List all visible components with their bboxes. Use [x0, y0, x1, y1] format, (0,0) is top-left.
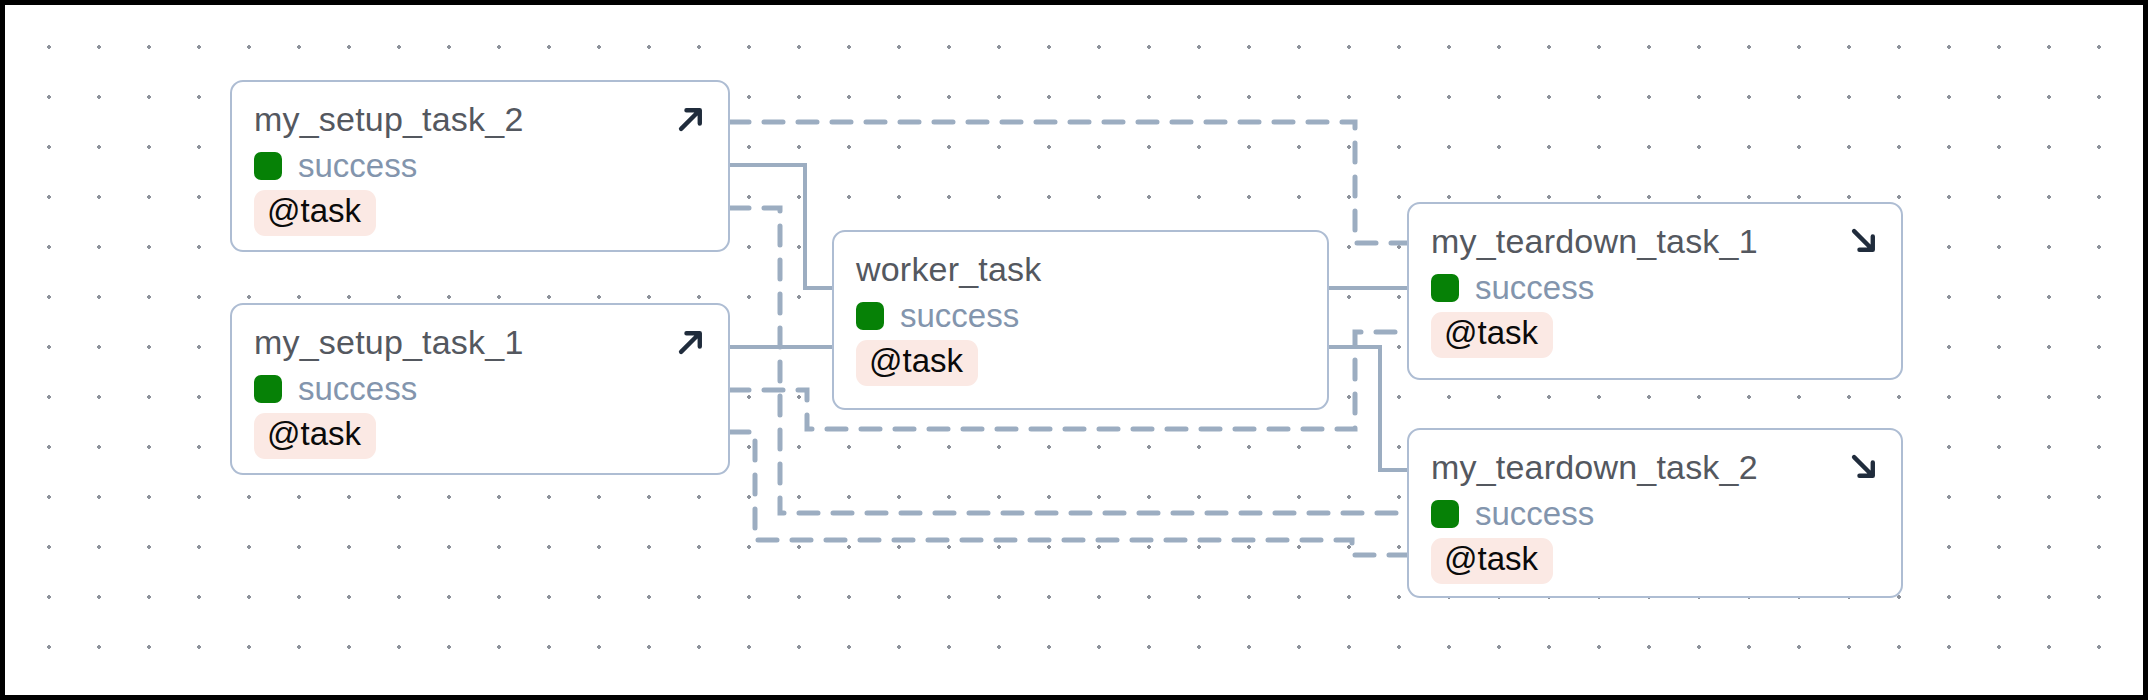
task-status-row: success	[254, 145, 710, 187]
task-badge-row: @task	[1431, 538, 1883, 584]
task-decorator-badge: @task	[1431, 538, 1553, 584]
status-square-icon	[1431, 274, 1459, 302]
task-node-my_setup_task_2[interactable]: my_setup_task_2 success @task	[230, 80, 730, 252]
status-square-icon	[856, 302, 884, 330]
task-badge-row: @task	[1431, 312, 1883, 358]
teardown-arrow-icon	[1847, 450, 1881, 484]
task-node-header: my_teardown_task_1	[1431, 218, 1883, 264]
task-node-header: my_setup_task_1	[254, 319, 710, 365]
graph-canvas[interactable]: my_setup_task_2 success @task my_setup_t…	[0, 0, 2148, 700]
status-label: success	[1475, 269, 1594, 307]
task-status-row: success	[856, 295, 1309, 337]
task-badge-row: @task	[856, 340, 1309, 386]
task-node-my_setup_task_1[interactable]: my_setup_task_1 success @task	[230, 303, 730, 475]
task-status-row: success	[1431, 493, 1883, 535]
status-square-icon	[254, 152, 282, 180]
task-title: my_setup_task_1	[254, 323, 524, 362]
status-label: success	[1475, 495, 1594, 533]
nodes-layer: my_setup_task_2 success @task my_setup_t…	[0, 0, 2148, 700]
task-title: my_teardown_task_2	[1431, 448, 1758, 487]
task-decorator-badge: @task	[856, 340, 978, 386]
task-decorator-badge: @task	[254, 413, 376, 459]
status-label: success	[298, 147, 417, 185]
task-node-worker_task[interactable]: worker_task success @task	[832, 230, 1329, 410]
task-decorator-badge: @task	[1431, 312, 1553, 358]
task-decorator-badge: @task	[254, 190, 376, 236]
task-title: my_teardown_task_1	[1431, 222, 1758, 261]
status-label: success	[900, 297, 1019, 335]
status-label: success	[298, 370, 417, 408]
task-badge-row: @task	[254, 413, 710, 459]
task-node-my_teardown_task_2[interactable]: my_teardown_task_2 success @task	[1407, 428, 1903, 598]
task-node-my_teardown_task_1[interactable]: my_teardown_task_1 success @task	[1407, 202, 1903, 380]
setup-arrow-icon	[674, 325, 708, 359]
task-node-header: my_teardown_task_2	[1431, 444, 1883, 490]
task-status-row: success	[1431, 267, 1883, 309]
task-title: worker_task	[856, 250, 1041, 289]
status-square-icon	[254, 375, 282, 403]
setup-arrow-icon	[674, 102, 708, 136]
task-node-header: my_setup_task_2	[254, 96, 710, 142]
teardown-arrow-icon	[1847, 224, 1881, 258]
task-node-header: worker_task	[856, 246, 1309, 292]
status-square-icon	[1431, 500, 1459, 528]
task-title: my_setup_task_2	[254, 100, 524, 139]
task-status-row: success	[254, 368, 710, 410]
task-badge-row: @task	[254, 190, 710, 236]
